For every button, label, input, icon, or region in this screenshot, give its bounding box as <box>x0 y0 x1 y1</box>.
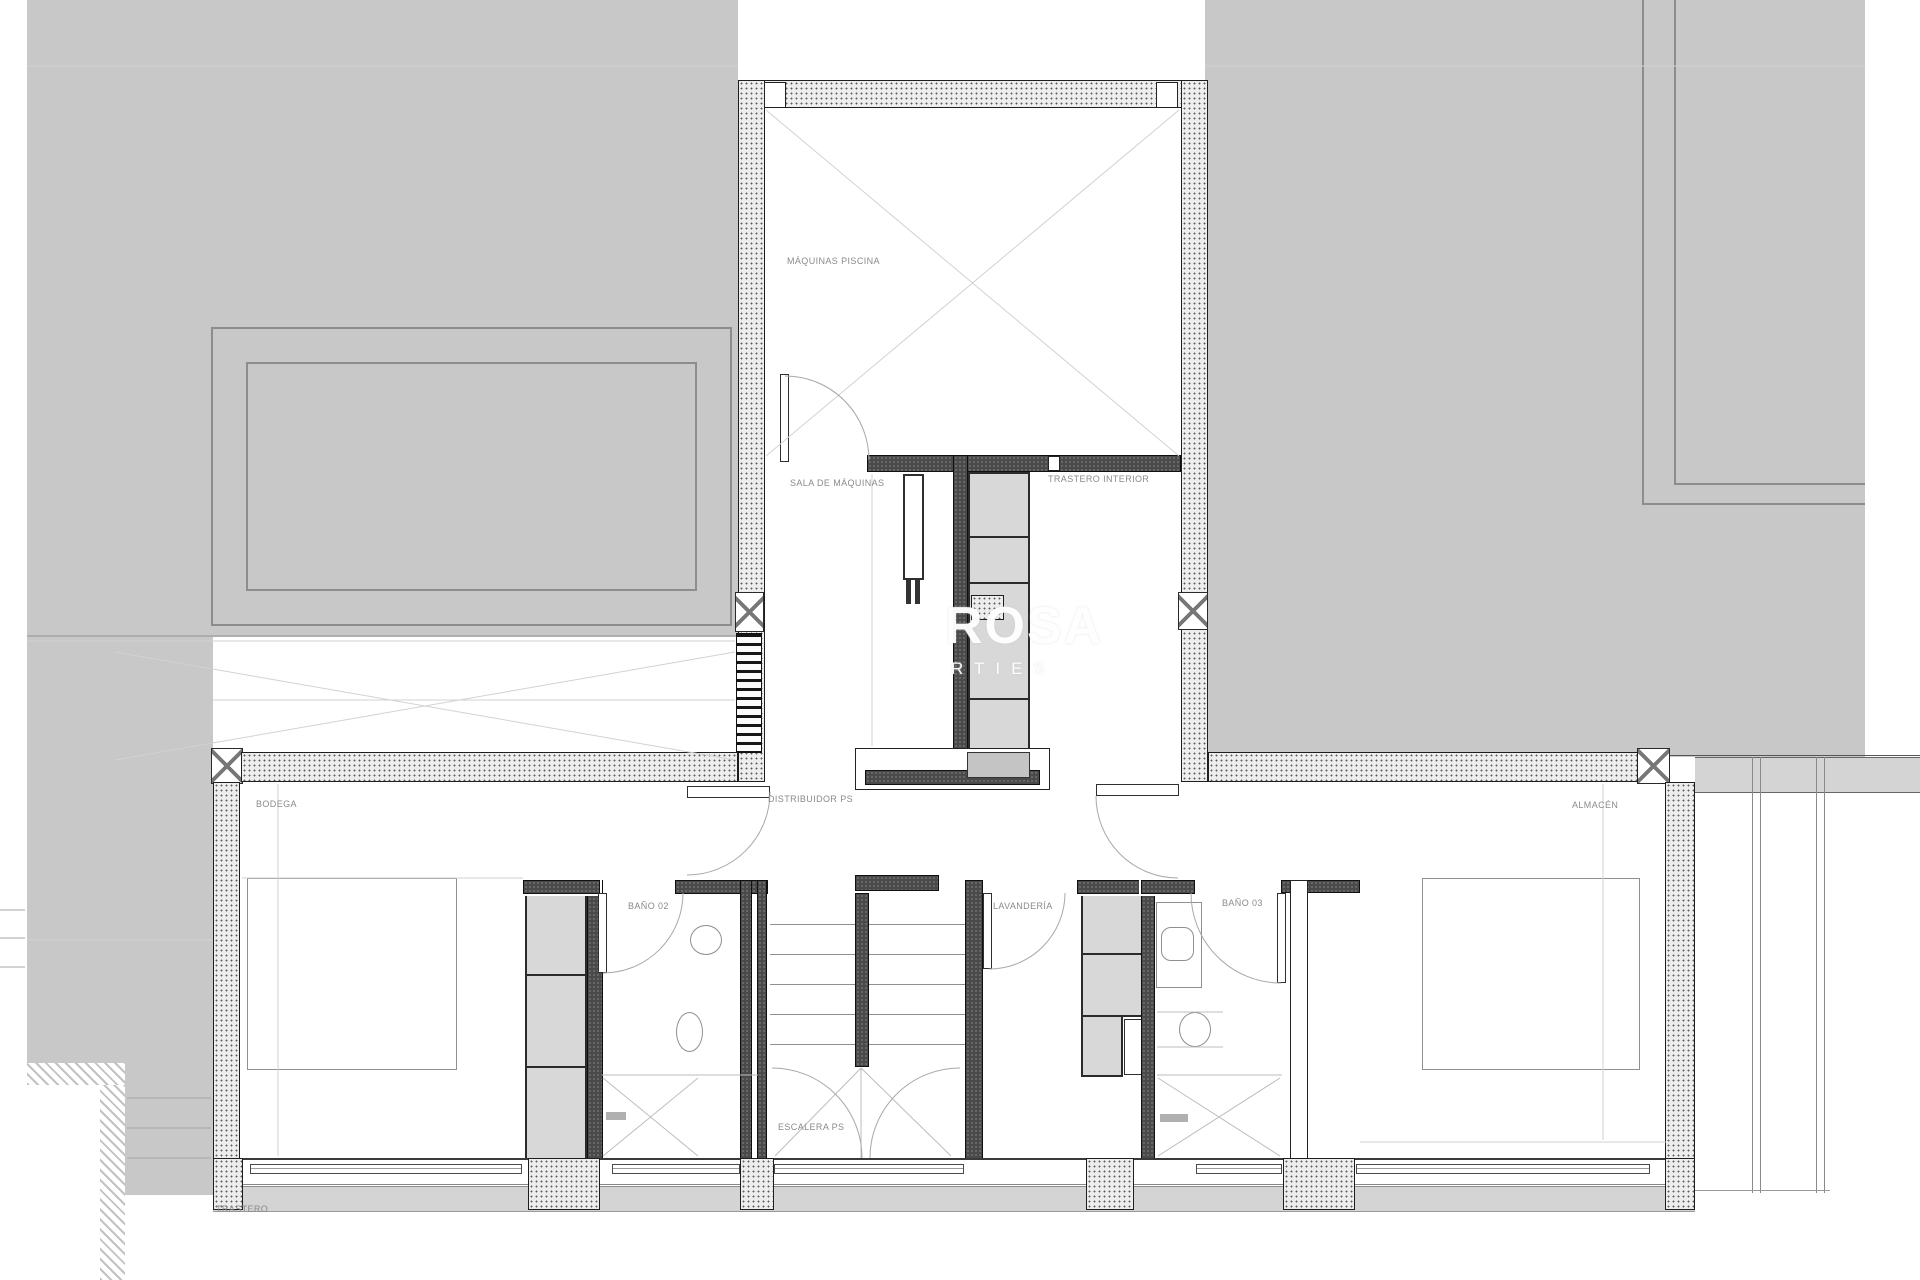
terrain-left-side <box>27 637 213 1063</box>
closet-lavanderia-cell-1 <box>1081 893 1143 955</box>
room-label-escalera-ps: ESCALERA PS <box>778 1122 844 1132</box>
wall-gap-top-right <box>1156 82 1178 108</box>
closet-bodega-cell-1 <box>525 882 587 976</box>
room-label-bano-03: BAÑO 03 <box>1222 898 1263 908</box>
room-label-trastero: TRASTERO <box>216 1204 268 1214</box>
stairs-center-stub <box>855 893 869 1067</box>
closet-foot-pier <box>967 752 1030 778</box>
retaining-line-1 <box>1752 757 1753 1193</box>
stair-flight-right <box>869 895 965 1065</box>
wall-stairs-west-outer <box>740 880 752 1160</box>
retaining-line-2 <box>1760 757 1761 1193</box>
almacen-storage-rect <box>1422 878 1640 1070</box>
door-leaf-bano03 <box>1277 893 1286 983</box>
retaining-line-4 <box>1824 757 1825 1193</box>
bano02-bidet <box>676 1012 703 1052</box>
terrace-band-right <box>1695 757 1920 793</box>
bano02-shower-head <box>606 1112 626 1120</box>
room-label-almacen: ALMACÉN <box>1572 800 1618 810</box>
closet-lavanderia-cell-3 <box>1081 1015 1123 1077</box>
watermark-line2: RTIES <box>951 659 1103 679</box>
wall-stairs-west-inner <box>757 880 767 1160</box>
closet-bodega-cell-3 <box>525 1066 587 1160</box>
door-leaf-lavanderia <box>983 893 992 969</box>
pool-outline-right-inner <box>1674 0 1865 485</box>
closet-mid-cell-2 <box>968 536 1030 584</box>
door-leaf-distribuidor-left <box>687 786 770 798</box>
window-bodega <box>250 1164 522 1174</box>
closet-mid-cell-4 <box>968 698 1030 752</box>
slope-hatch-vertical <box>100 1085 125 1280</box>
bano03-bidet <box>1179 1012 1211 1047</box>
watermark-line1: ROSA <box>945 600 1103 652</box>
wall-band-top-left-segment <box>241 752 738 782</box>
bodega-storage-rect <box>247 878 457 1070</box>
pier-2 <box>528 1158 600 1210</box>
wall-stairs-north <box>855 875 939 891</box>
wall-junction-band-left <box>211 748 243 784</box>
bano02-toilet <box>690 925 722 955</box>
wall-machines-right <box>1181 80 1208 782</box>
wall-lavanderia-north-right <box>1077 880 1143 894</box>
closet-lavanderia-cell-2 <box>1081 953 1143 1017</box>
south-wall-line <box>213 1158 1695 1160</box>
pier-4 <box>1086 1158 1134 1210</box>
door-leaf-distribuidor-right <box>1096 784 1179 796</box>
room-label-maquinas-piscina: MÁQUINAS PISCINA <box>787 256 880 266</box>
wall-stairs-east <box>965 880 983 1160</box>
wall-bano02-north-right <box>675 880 768 894</box>
boiler-leg-left <box>906 580 911 604</box>
room-label-sala-de-maquinas: SALA DE MÁQUINAS <box>790 478 884 488</box>
door-leaf-machines <box>780 374 789 462</box>
window-bano02 <box>612 1164 740 1174</box>
room-label-distribuidor-ps: DISTRIBUIDOR PS <box>768 794 853 804</box>
wall-band-top-right-segment <box>1208 752 1638 782</box>
wall-bano02-north-left <box>523 880 600 894</box>
wall-band-right <box>1665 782 1695 1160</box>
retaining-line-3 <box>1816 757 1817 1193</box>
room-label-bodega: BODEGA <box>256 799 297 809</box>
closet-mid-cell-1 <box>968 472 1030 538</box>
window-escalera <box>774 1164 964 1174</box>
window-frame-line <box>240 1184 1668 1185</box>
floor-plan-canvas: MÁQUINAS PISCINA SALA DE MÁQUINAS TRASTE… <box>0 0 1920 1280</box>
wall-gap-top-left <box>764 82 786 108</box>
window-almacen <box>1356 1164 1650 1174</box>
pier-3 <box>740 1158 774 1210</box>
wall-machines-top <box>738 80 1208 108</box>
closet-bodega-cell-2 <box>525 974 587 1068</box>
wall-band-left <box>213 782 240 1160</box>
wall-bano03-west <box>1141 880 1155 1160</box>
pier-1 <box>213 1158 243 1210</box>
wall-junction-left <box>735 592 764 632</box>
retaining-line-bottom <box>1695 1190 1830 1191</box>
boiler-symbol <box>903 474 924 580</box>
exterior-ladder <box>736 633 762 753</box>
window-bano03 <box>1196 1164 1282 1174</box>
bano03-shower-head <box>1160 1114 1188 1122</box>
room-label-bano-02: BAÑO 02 <box>628 901 669 911</box>
stair-flight-left <box>770 895 855 1065</box>
bano03-toilet <box>1161 927 1194 961</box>
room-label-lavanderia: LAVANDERÍA <box>993 901 1053 911</box>
wall-bano03-north-left <box>1141 880 1195 894</box>
pier-6 <box>1665 1158 1695 1210</box>
pier-5 <box>1283 1158 1355 1210</box>
wall-junction-band-right <box>1637 748 1670 784</box>
window-sill-band <box>213 1186 1695 1212</box>
boiler-leg-right <box>915 580 920 604</box>
room-label-trastero-interior: TRASTERO INTERIOR <box>1048 474 1149 484</box>
terrain-left-steps <box>125 1063 213 1195</box>
wall-salamaquinas-south <box>867 455 1181 472</box>
pool-outline-left-inner <box>246 362 697 591</box>
door-notch-trastero-interior <box>1048 456 1060 471</box>
wall-junction-right <box>1178 592 1208 630</box>
wall-almacen-west <box>1290 880 1308 1160</box>
watermark: ROSA RTIES <box>945 600 1103 679</box>
slope-hatch-horizontal <box>27 1063 125 1085</box>
door-leaf-bano02 <box>598 893 607 973</box>
